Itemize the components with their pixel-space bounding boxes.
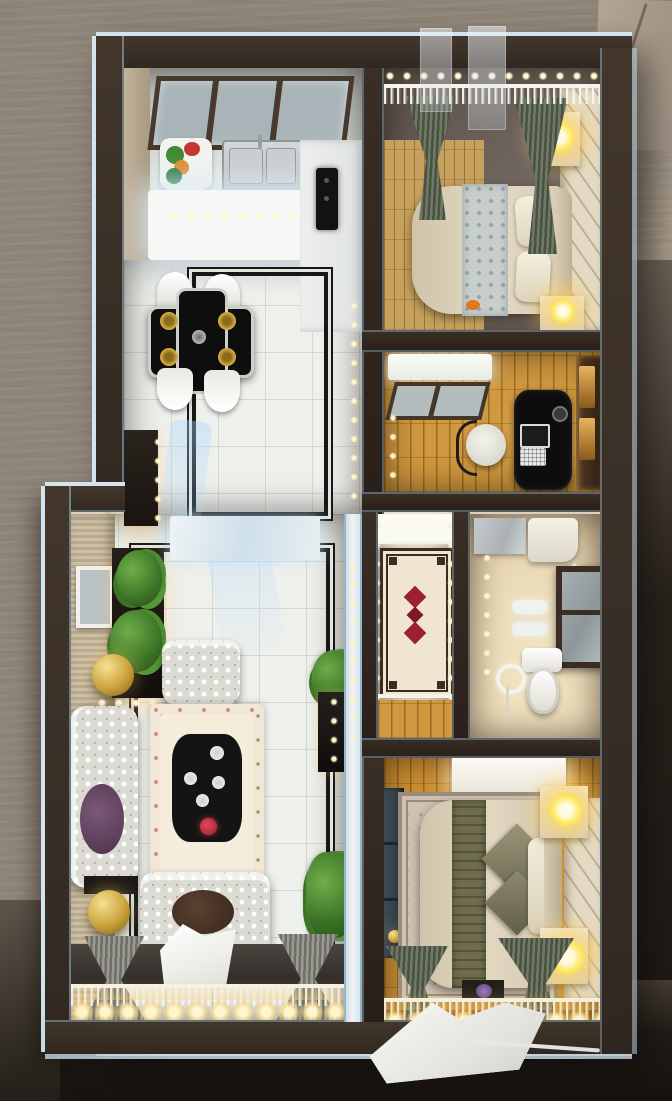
study-bookshelf — [576, 356, 600, 490]
living-rug — [150, 704, 264, 882]
study-led-dots — [388, 412, 398, 488]
cooktop — [316, 168, 338, 230]
gold-plate — [218, 348, 236, 366]
plexiglass-support — [420, 28, 452, 112]
bathroom-candle-lights — [482, 552, 492, 680]
inner-wall-bathroom-bedroom — [362, 738, 600, 758]
vegetable-red — [184, 142, 200, 156]
dining-chair — [157, 368, 193, 410]
sprayer-head — [496, 664, 526, 694]
purple-flower — [476, 984, 492, 998]
decor-plate — [212, 776, 225, 789]
toilet-bowl — [527, 668, 559, 714]
rug-corner-ornament — [437, 557, 445, 565]
purple-throw — [80, 784, 124, 854]
floral-blanket — [462, 184, 508, 316]
inner-wall-corridor-left — [362, 512, 378, 758]
laptop-keyboard — [520, 448, 546, 466]
kitchen-left-cabinet — [124, 68, 150, 260]
inner-wall-main-vertical — [362, 68, 384, 514]
laptop-screen — [520, 424, 550, 448]
cooktop-knob — [324, 196, 329, 201]
gold-wicker-lamp — [92, 654, 134, 696]
decor-plate — [208, 744, 226, 762]
background-right-shadow — [628, 260, 672, 1101]
window-mullion — [205, 81, 219, 145]
cooktop-knob — [324, 178, 329, 183]
center-dish — [192, 330, 206, 344]
gold-plate — [160, 312, 178, 330]
towel-shelf — [512, 622, 548, 636]
potted-plant — [116, 550, 162, 606]
decor-plate — [196, 794, 209, 807]
gold-wicker-lamp — [88, 890, 130, 934]
rug-center-panel — [172, 734, 242, 842]
sprayer-pole — [506, 686, 509, 716]
window-mullion — [269, 81, 283, 145]
study-desk — [514, 390, 572, 490]
orange-accent — [466, 300, 480, 310]
plexiglass-support — [468, 26, 506, 130]
olive-runner — [452, 800, 486, 988]
outer-wall-bottom — [45, 1020, 632, 1054]
inner-wall-corridor-bathroom — [452, 512, 470, 758]
towel-shelf — [512, 600, 548, 614]
vegetable-cabbage — [166, 168, 182, 184]
outer-wall-left-lower — [45, 486, 71, 1052]
corridor-threshold — [378, 514, 452, 544]
gold-plate — [160, 348, 178, 366]
bedside-lamp — [548, 296, 578, 326]
vegetable-basket — [160, 138, 212, 190]
outer-wall-left-upper — [96, 36, 124, 512]
desk-clock — [552, 406, 568, 422]
outer-wall-right — [600, 48, 632, 1054]
study-window — [385, 382, 490, 420]
lit-frame — [579, 418, 595, 460]
corridor-wood-threshold — [378, 700, 452, 738]
chair-back-frame — [456, 420, 477, 476]
dining-chair — [204, 370, 240, 412]
lit-frame — [579, 366, 595, 408]
outer-wall-top — [96, 36, 632, 68]
window-mullion — [428, 386, 440, 416]
hall-wall-led-column — [348, 300, 360, 512]
inner-wall-study-corridor — [362, 492, 600, 512]
loveseat-sofa — [162, 640, 240, 706]
study-window-valance — [388, 354, 492, 380]
pillar-led-dots — [347, 560, 359, 740]
gold-plate — [218, 312, 236, 330]
sink-basin — [266, 148, 296, 184]
sink-basin — [229, 148, 263, 184]
rug-medallion — [404, 586, 427, 609]
rug-corner-ornament — [437, 681, 445, 689]
rug-corner-ornament — [389, 557, 397, 565]
vanity-mirror — [474, 518, 526, 554]
runner-rug — [380, 548, 454, 698]
threshold-curb — [378, 694, 452, 698]
rug-corner-ornament — [389, 681, 397, 689]
decor-plate — [184, 772, 197, 785]
rug-medallion — [404, 622, 427, 645]
red-flower — [200, 818, 217, 835]
bedside-lamp — [546, 790, 586, 830]
sideboard — [170, 516, 320, 560]
kitchen-sink — [222, 140, 304, 192]
picture-frame — [76, 566, 114, 628]
inner-wall-bedroom-study — [362, 330, 600, 352]
inner-wall-bedroom2-left — [362, 758, 384, 1022]
model-photo — [0, 0, 672, 1101]
sink-faucet — [258, 134, 262, 148]
console-sparkle-lights — [328, 696, 340, 768]
